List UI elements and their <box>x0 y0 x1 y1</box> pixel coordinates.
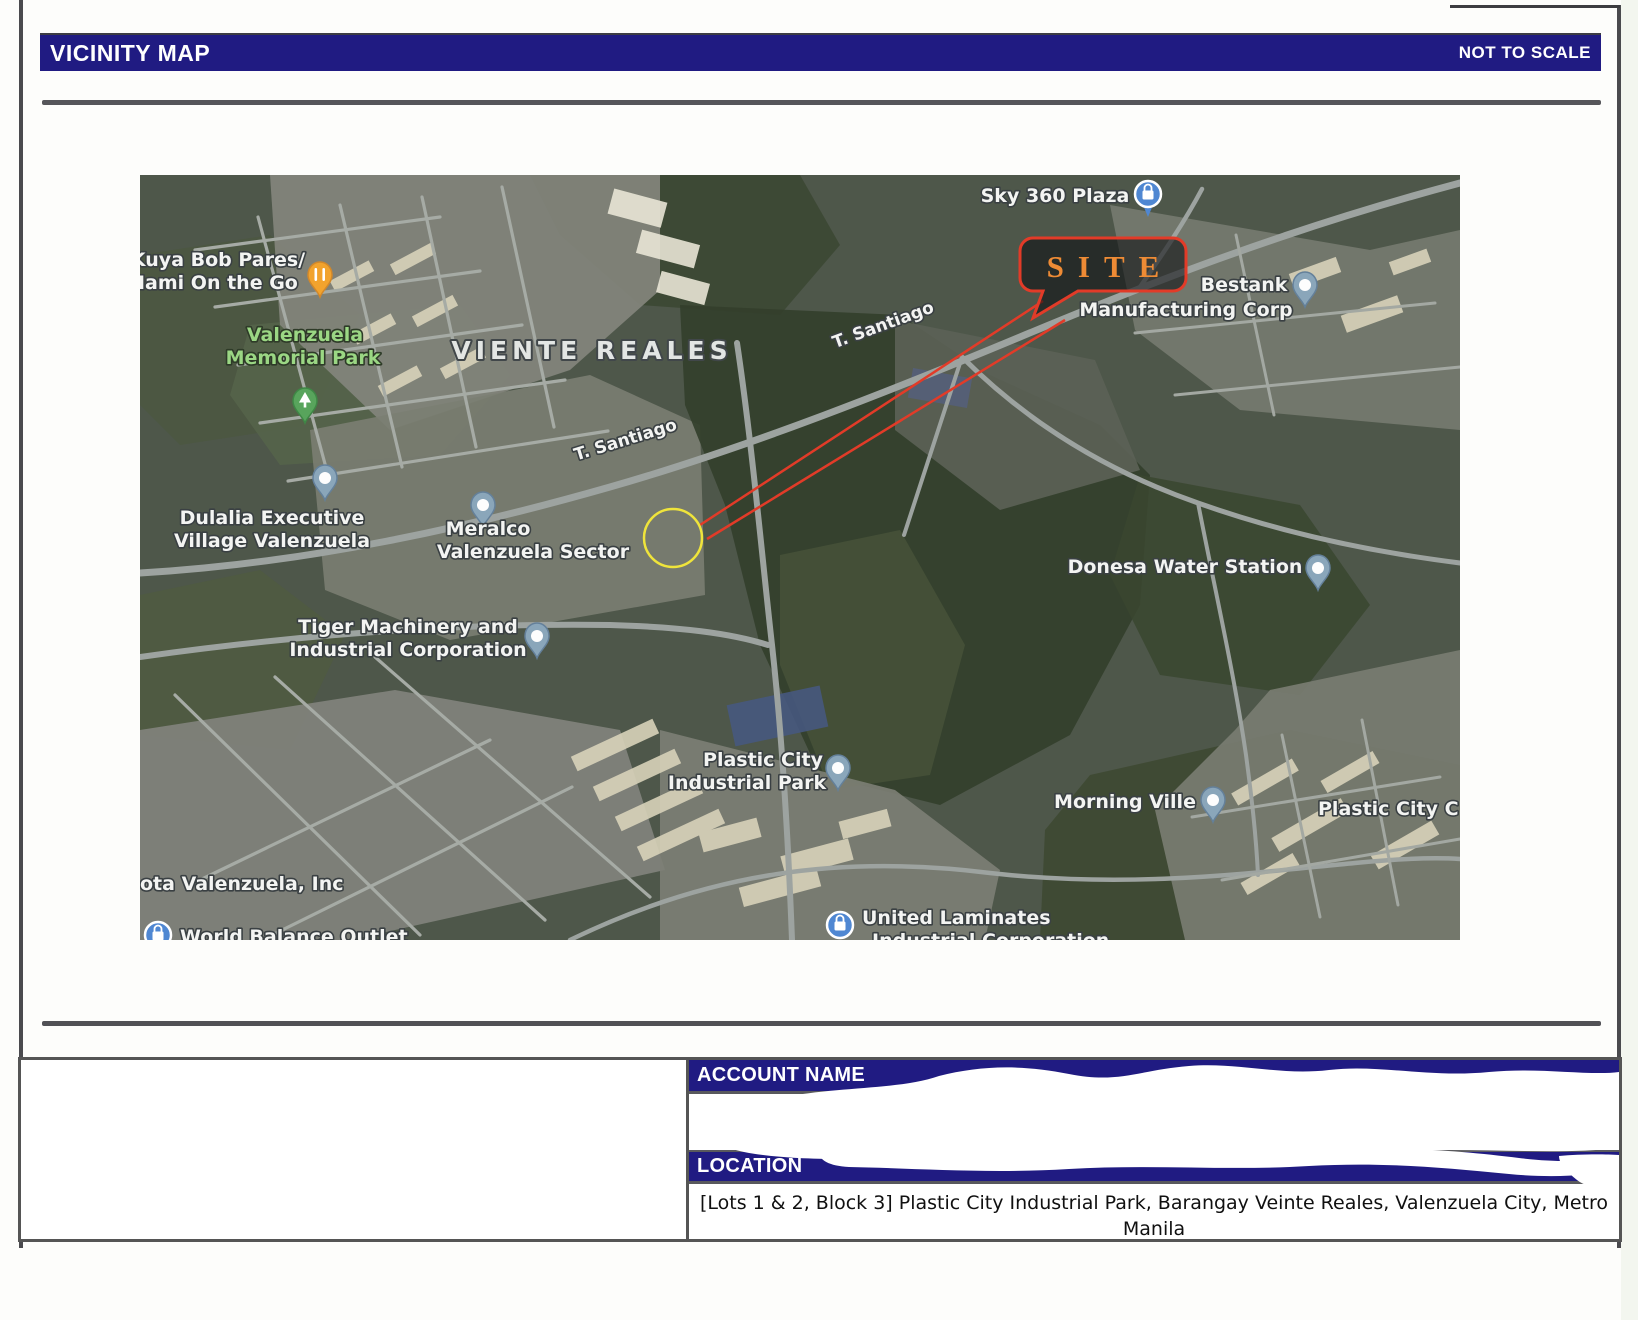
world-balance-shop-icon <box>145 922 171 940</box>
label-united-2: Industrial Corporation <box>872 930 1109 940</box>
page-right-margin <box>1621 0 1638 1320</box>
satellite-map: SITE Sky 360 Plaza Best <box>140 175 1460 940</box>
label-meralco-2: Valenzuela Sector <box>437 541 630 563</box>
label-tiger-2: Industrial Corporation <box>289 639 526 661</box>
label-bestank-1: Bestank <box>1201 274 1288 296</box>
label-morning-ville: Morning Ville <box>1054 791 1196 813</box>
page-border-top-segment <box>1450 5 1620 8</box>
scale-note: NOT TO SCALE <box>1459 43 1591 63</box>
page-title: VICINITY MAP <box>50 40 210 67</box>
location-label: LOCATION <box>697 1155 802 1178</box>
account-name-bar: ACCOUNT NAME <box>689 1060 1619 1094</box>
label-tiger-1: Tiger Machinery and <box>298 616 518 638</box>
united-laminates-shop-icon <box>827 912 853 938</box>
label-memorial-1: Valenzuela <box>247 324 363 346</box>
label-dulalia-2: Village Valenzuela <box>174 530 370 552</box>
location-bar: LOCATION <box>689 1150 1619 1184</box>
label-world-balance: World Balance Outlet <box>180 926 408 940</box>
label-sky360: Sky 360 Plaza <box>981 185 1130 207</box>
location-address: [Lots 1 & 2, Block 3] Plastic City Indus… <box>689 1184 1619 1239</box>
label-toyota: ota Valenzuela, Inc <box>140 873 343 895</box>
vicinity-map-page: VICINITY MAP NOT TO SCALE <box>0 0 1638 1320</box>
label-memorial-2: Memorial Park <box>226 347 381 369</box>
satellite-map-svg: SITE Sky 360 Plaza Best <box>140 175 1460 940</box>
header-bar: VICINITY MAP NOT TO SCALE <box>40 33 1601 71</box>
label-meralco-1: Meralco <box>446 518 531 540</box>
account-name-value-redacted <box>689 1094 1619 1150</box>
title-block: ACCOUNT NAME LOCATION [Lots 1 & 2, Block… <box>18 1057 1622 1242</box>
sky360-shop-icon <box>1135 181 1161 207</box>
label-dulalia-1: Dulalia Executive <box>180 507 365 529</box>
label-bestank-2: Manufacturing Corp <box>1079 299 1292 321</box>
label-plastic-2: Industrial Park <box>668 772 827 794</box>
label-donesa: Donesa Water Station <box>1068 556 1303 578</box>
label-kuya-2: Mami On the Go <box>140 272 298 294</box>
account-name-label: ACCOUNT NAME <box>697 1064 865 1087</box>
title-block-empty-cell <box>21 1060 689 1239</box>
label-united-1: United Laminates <box>862 907 1051 929</box>
label-plastic-c: Plastic City C <box>1318 798 1459 820</box>
title-block-info-cell: ACCOUNT NAME LOCATION [Lots 1 & 2, Block… <box>689 1060 1619 1239</box>
site-label: SITE <box>1047 249 1174 284</box>
label-viente-reales: VIENTE REALES <box>451 336 732 365</box>
divider-top <box>42 100 1601 105</box>
divider-bottom <box>42 1021 1601 1026</box>
label-plastic-1: Plastic City <box>703 749 824 771</box>
label-kuya-1: Kuya Bob Pares/ <box>140 249 305 271</box>
